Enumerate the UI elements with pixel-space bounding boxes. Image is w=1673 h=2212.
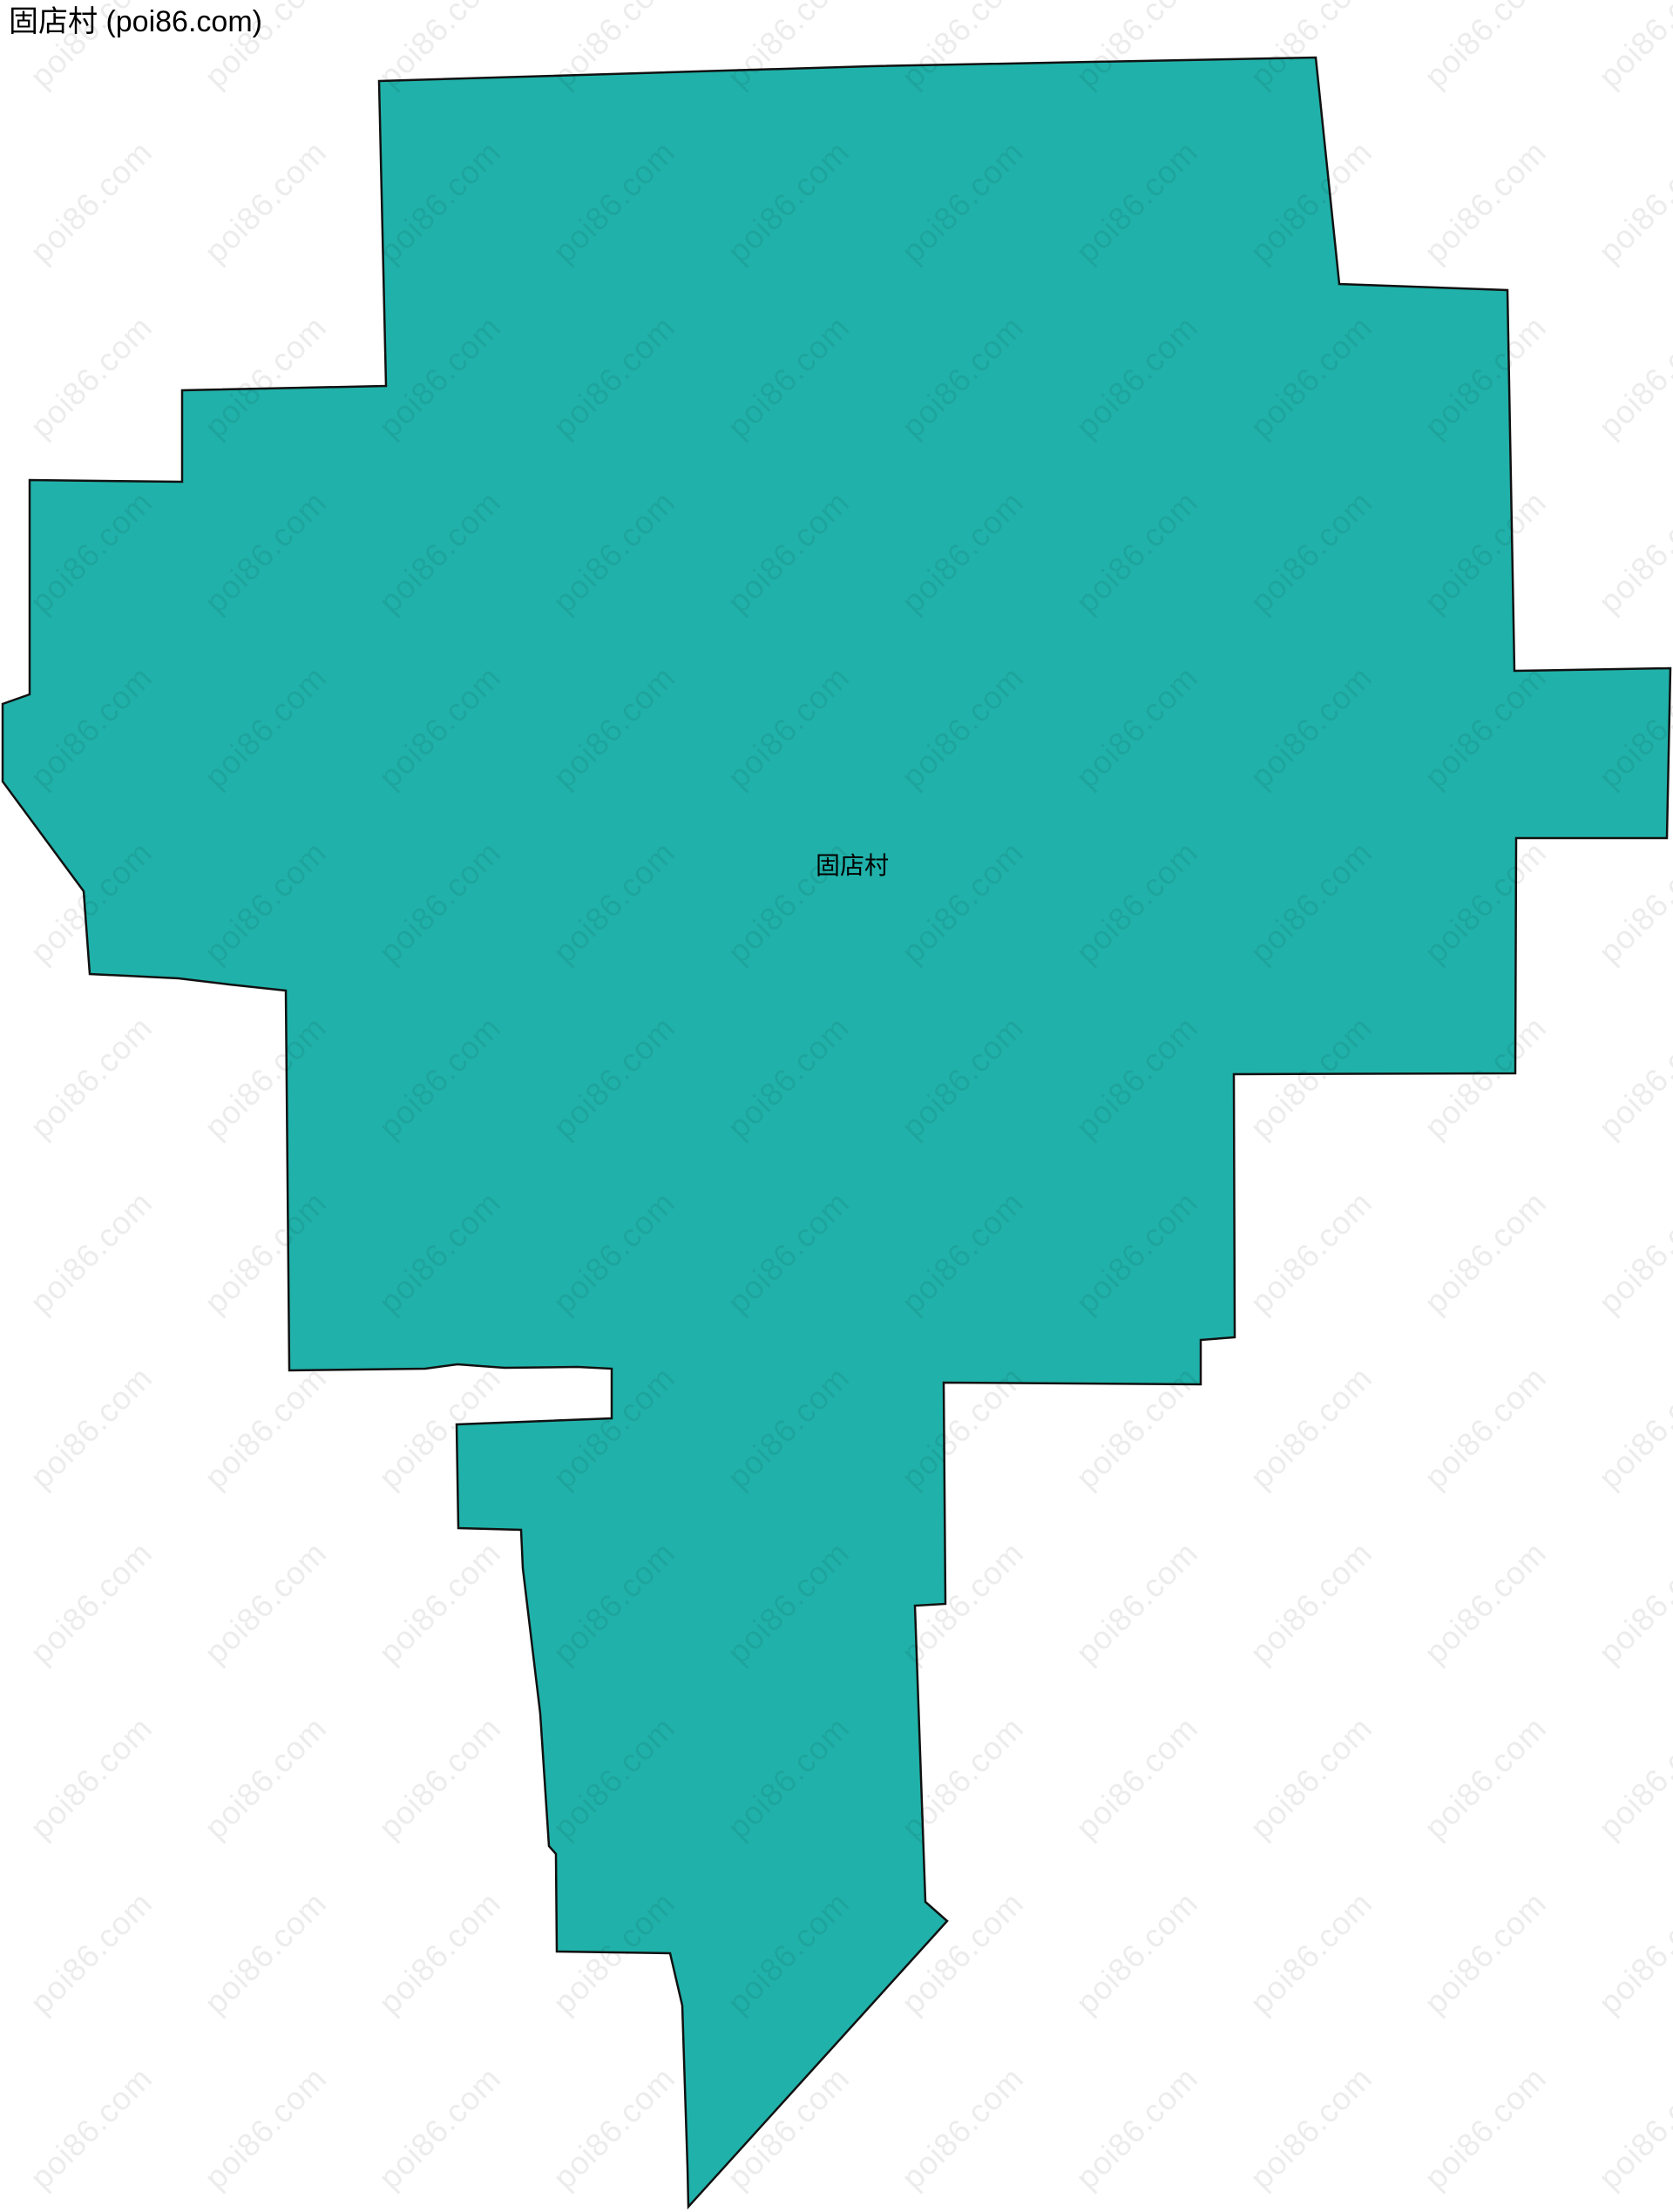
region-label: 固店村 xyxy=(816,847,889,882)
region-boundary-svg xyxy=(0,0,1673,2212)
map-canvas: poi86.compoi86.compoi86.compoi86.compoi8… xyxy=(0,0,1673,2212)
map-title: 固店村 (poi86.com) xyxy=(9,4,262,40)
region-polygon xyxy=(3,57,1670,2207)
